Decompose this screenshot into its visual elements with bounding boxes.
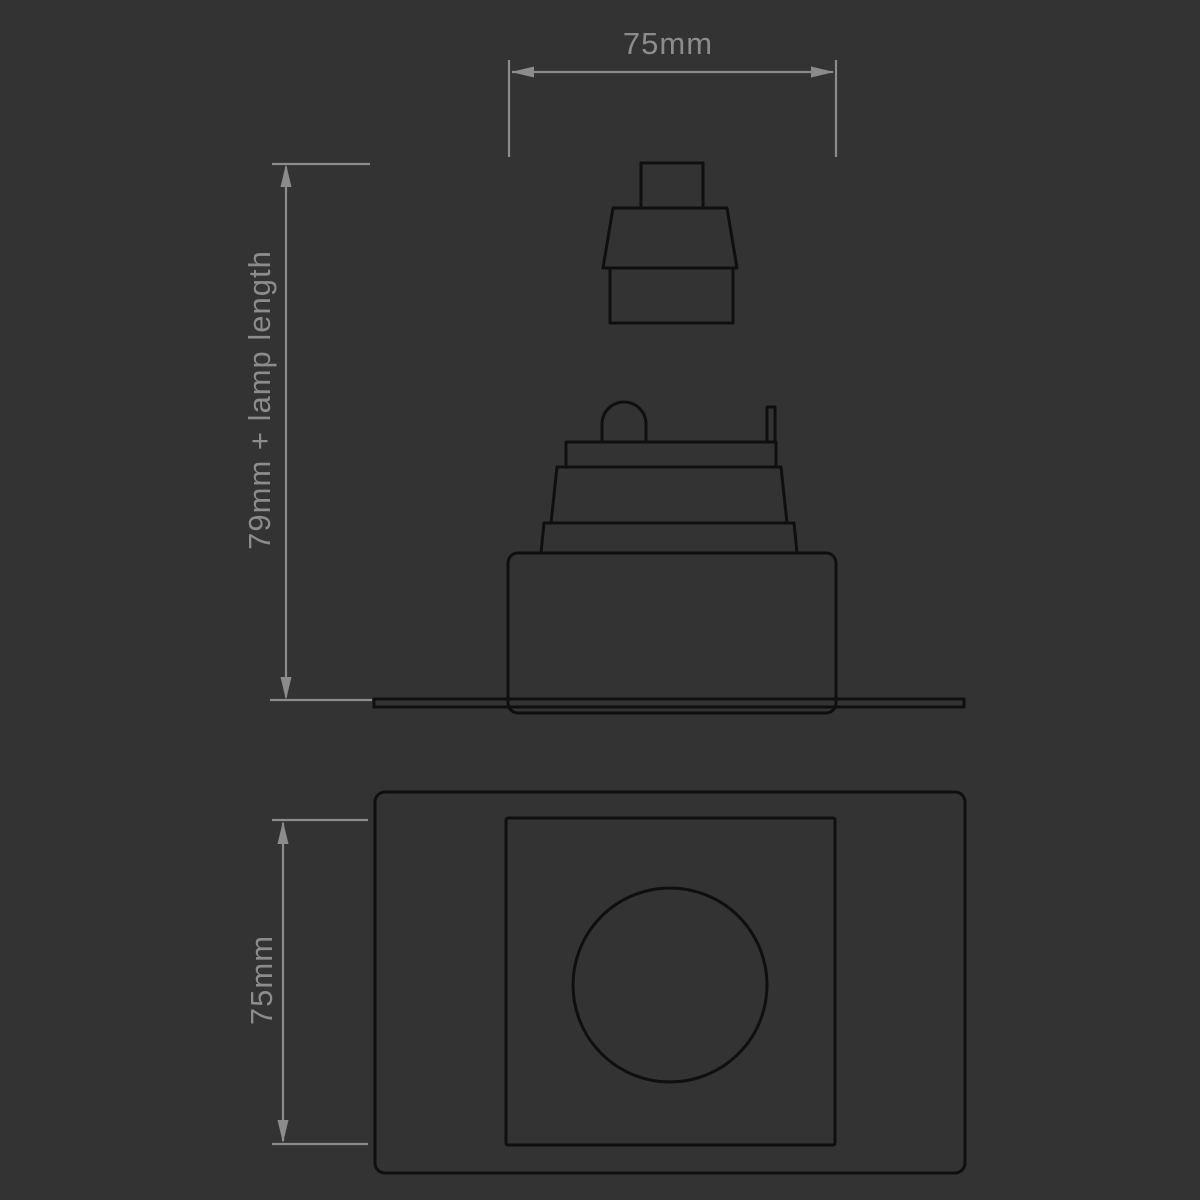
dimension-drawing: 75mm 79mm + lamp length [0,0,1200,1200]
dimension-label: 75mm [244,935,279,1025]
dimension-label: 75mm [623,26,713,61]
canvas-background [0,0,1200,1200]
dimension-label: 79mm + lamp length [242,250,277,550]
